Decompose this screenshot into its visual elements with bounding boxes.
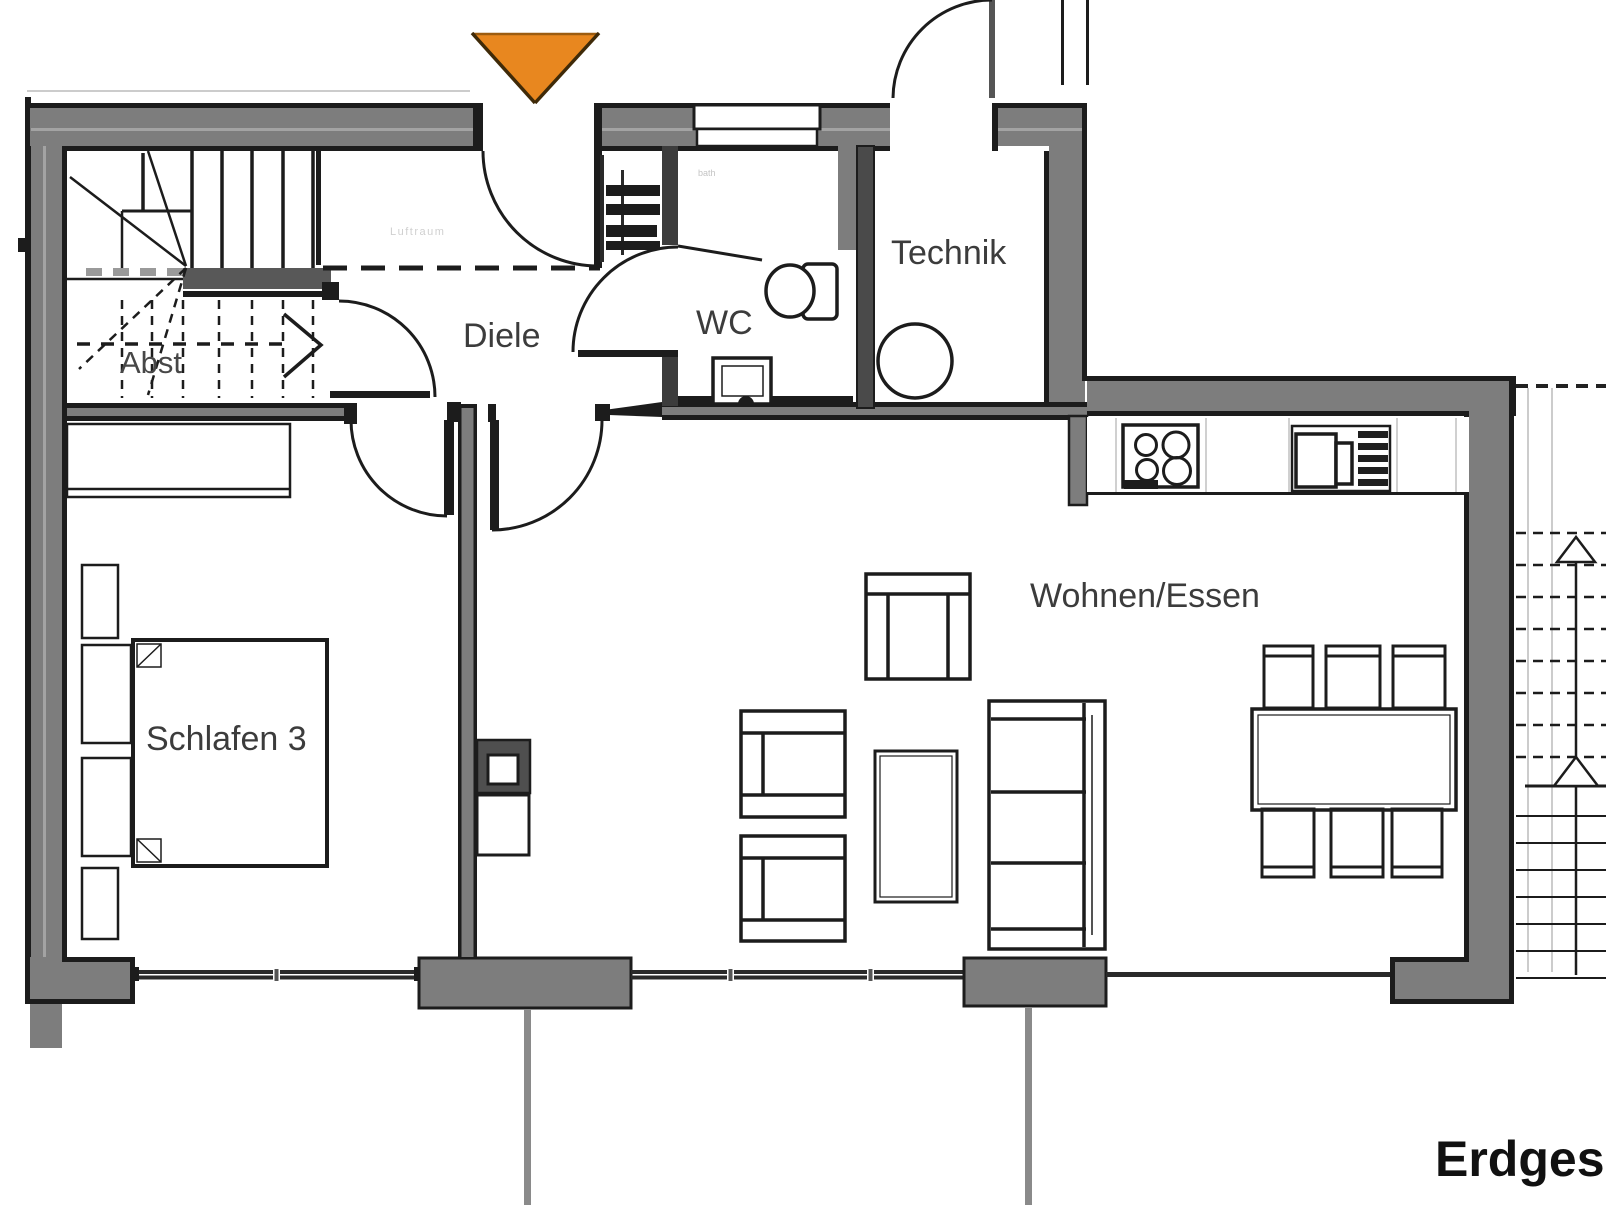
svg-text:Diele: Diele [463,317,540,355]
svg-text:Wohnen/Essen: Wohnen/Essen [1030,577,1260,615]
svg-text:WC: WC [696,304,753,342]
svg-text:bath: bath [698,168,716,178]
svg-text:Luftraum: Luftraum [390,226,445,238]
svg-text:Technik: Technik [891,234,1007,272]
svg-text:Abst: Abst [120,345,182,380]
svg-text:Schlafen 3: Schlafen 3 [146,720,307,758]
svg-text:Erdges: Erdges [1435,1131,1605,1187]
